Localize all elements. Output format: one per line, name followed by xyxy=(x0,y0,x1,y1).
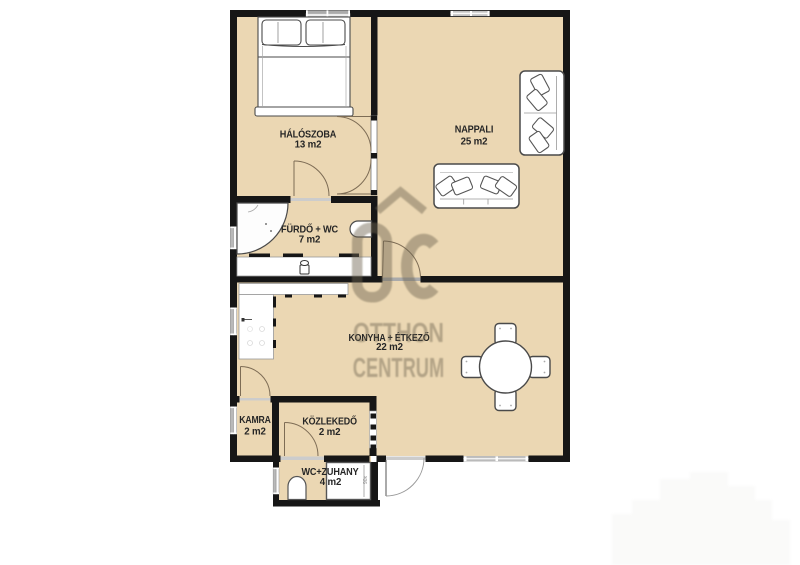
svg-text:13 m2: 13 m2 xyxy=(295,139,322,150)
svg-text:CENTRUM: CENTRUM xyxy=(353,352,445,383)
svg-text:2 m2: 2 m2 xyxy=(319,427,340,438)
svg-text:4 m2: 4 m2 xyxy=(320,477,341,488)
svg-text:KAMRA: KAMRA xyxy=(239,415,271,426)
svg-text:NAPPALI: NAPPALI xyxy=(455,125,494,136)
svg-text:90x: 90x xyxy=(363,475,369,484)
svg-text:2 m2: 2 m2 xyxy=(244,426,265,437)
svg-text:25 m2: 25 m2 xyxy=(461,137,488,148)
svg-text:OTTHON: OTTHON xyxy=(353,317,444,348)
svg-text:KÖZLEKEDŐ: KÖZLEKEDŐ xyxy=(302,416,357,428)
svg-text:FÜRDŐ + WC: FÜRDŐ + WC xyxy=(281,223,338,235)
svg-text:7 m2: 7 m2 xyxy=(299,235,320,246)
